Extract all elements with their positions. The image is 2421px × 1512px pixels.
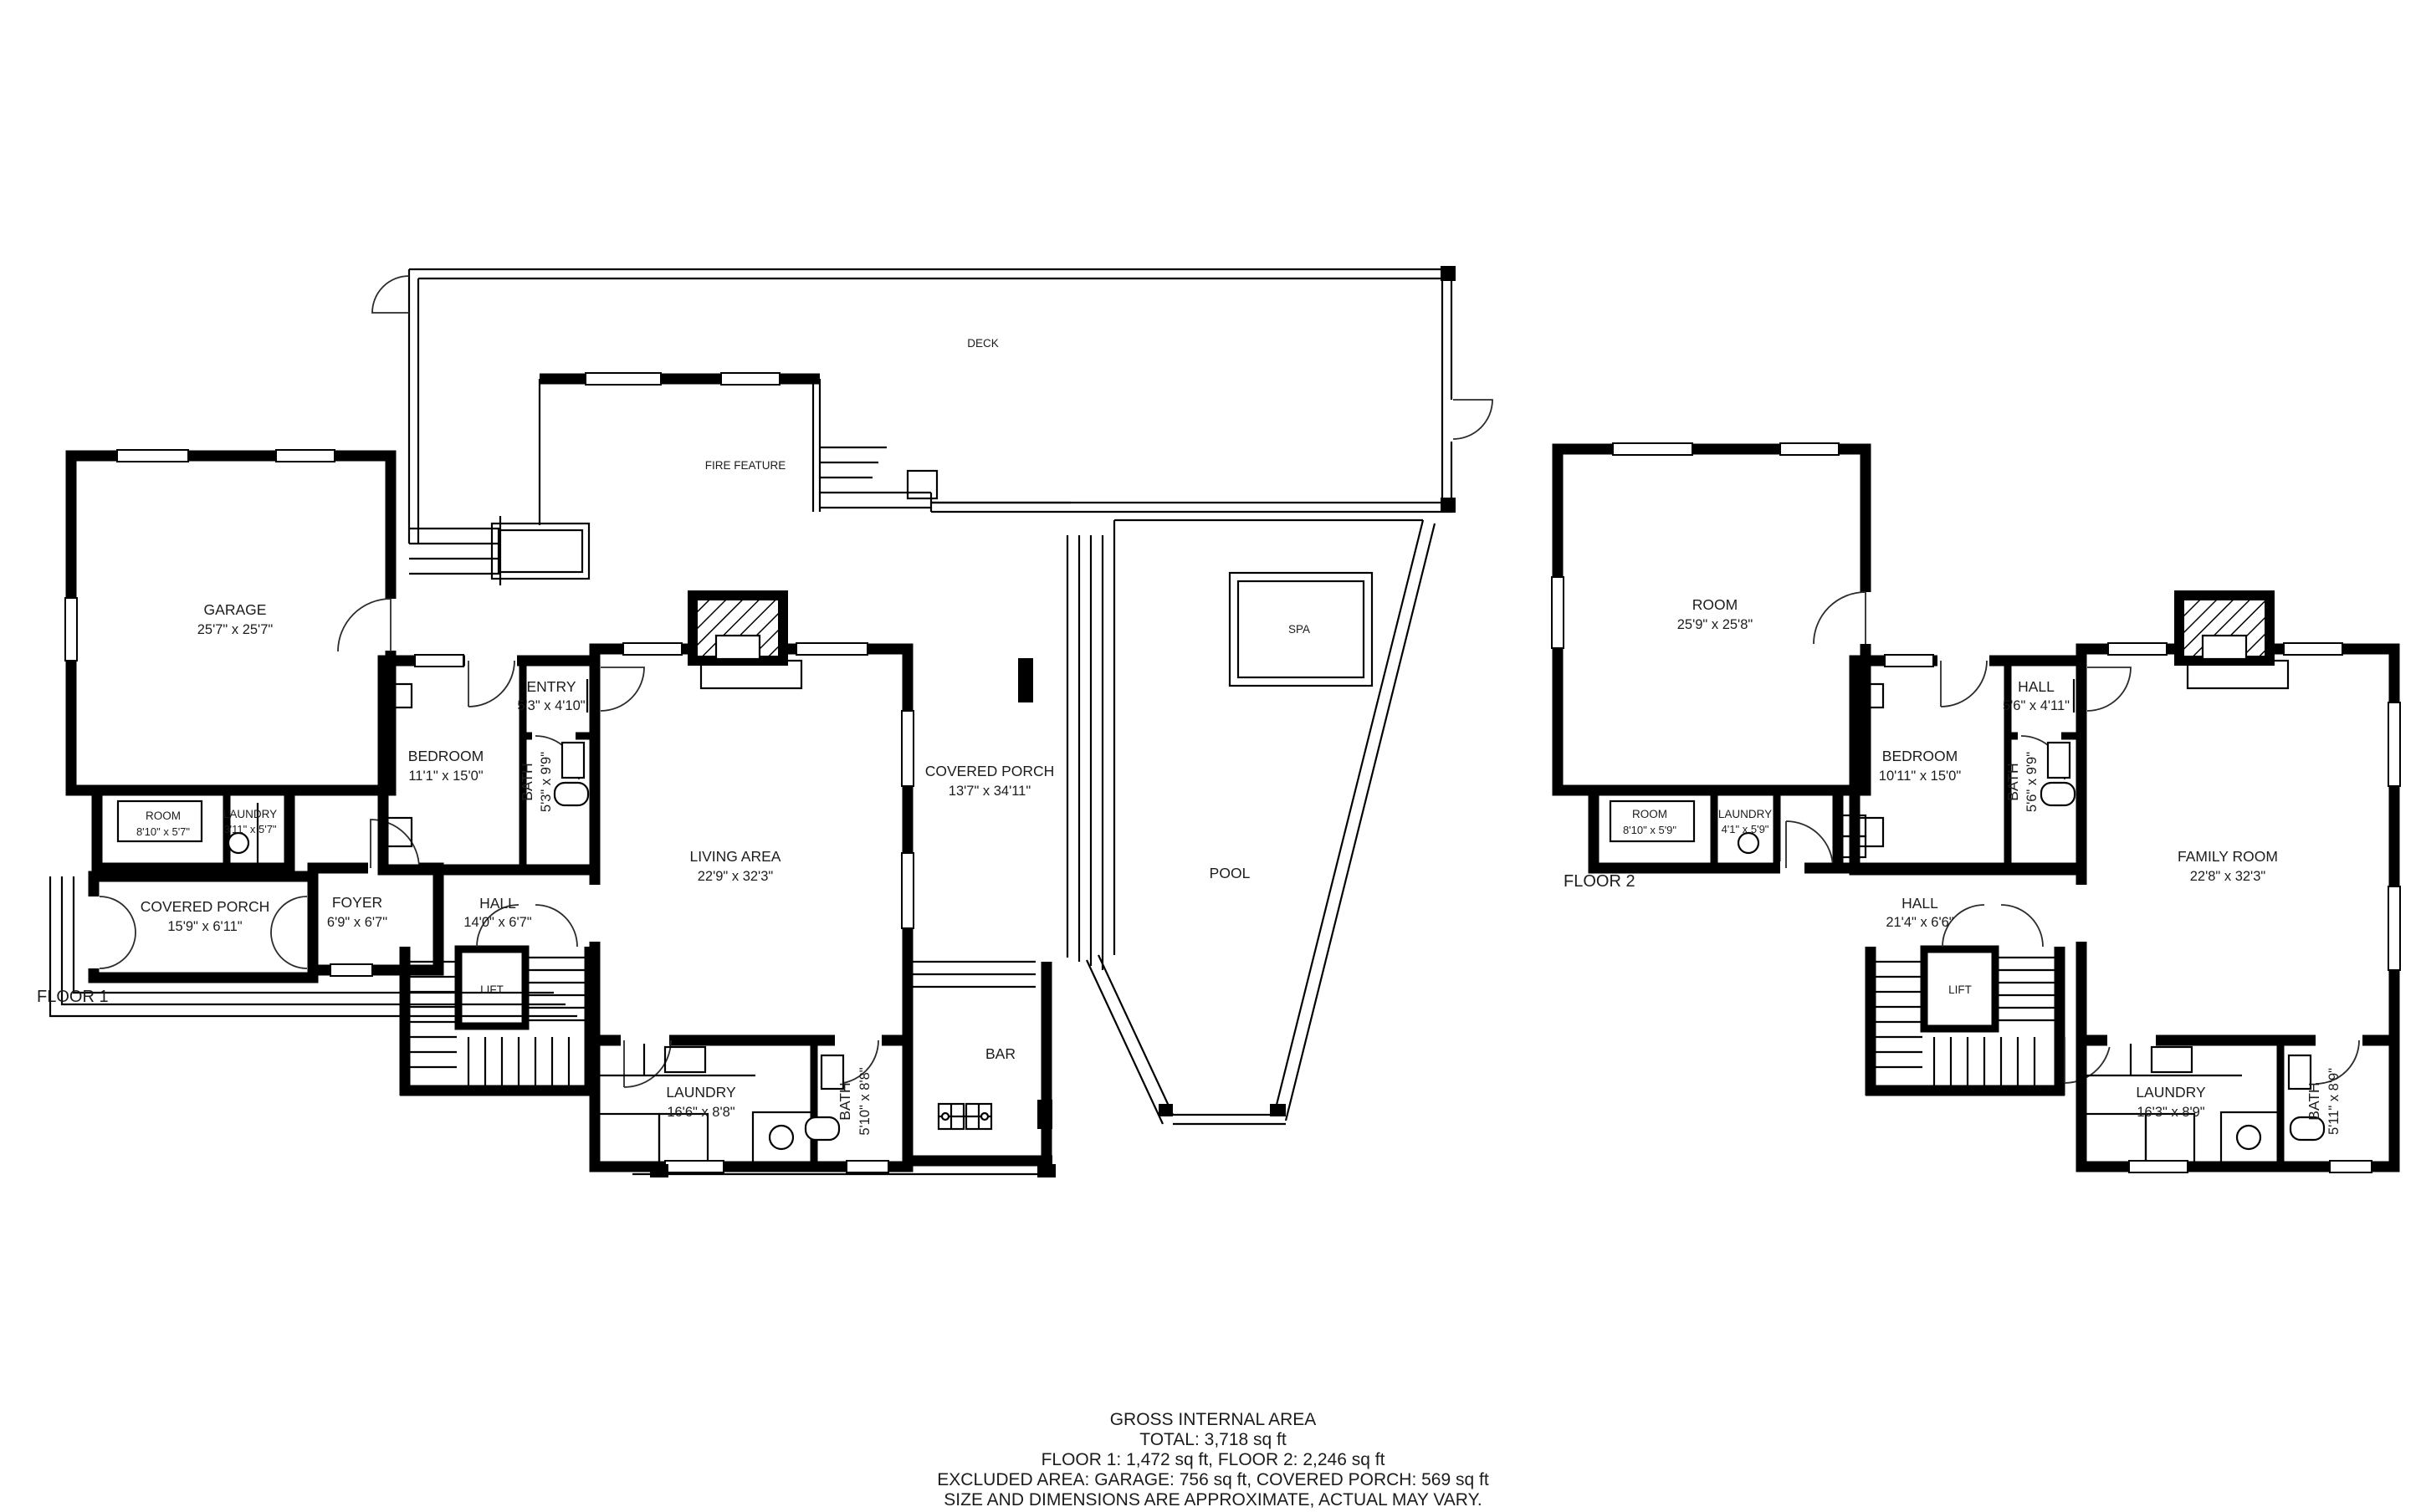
room-label-bath-f1: BATH — [519, 763, 535, 800]
room-dims-room-small-f2: 8'10" x 5'9" — [1623, 824, 1676, 836]
area-label-fire-feature: FIRE FEATURE — [705, 459, 786, 472]
room-dims-bath2-f2: 5'11" x 8'9" — [2326, 1068, 2342, 1135]
room-dims-hall-small-f2: 5'6" x 4'11" — [2003, 698, 2070, 713]
room-label-hall-f2: HALL — [1901, 895, 1938, 912]
living-area-walls — [589, 595, 914, 1040]
room-label-entry: ENTRY — [527, 678, 576, 695]
floor2-label: FLOOR 2 — [1564, 872, 1635, 891]
room-dims-room-large: 25'9" x 25'8" — [1677, 617, 1753, 632]
room-label-bedroom-f1: BEDROOM — [408, 748, 484, 764]
area-label-pool: POOL — [1210, 865, 1251, 881]
floor1-plan: GARAGE 25'7" x 25'7" ROOM 8'10" x 5'7" L… — [37, 266, 1492, 1177]
summary-line-5: SIZE AND DIMENSIONS ARE APPROXIMATE, ACT… — [944, 1490, 1482, 1509]
floor-plan-svg: GARAGE 25'7" x 25'7" ROOM 8'10" x 5'7" L… — [0, 0, 2421, 1512]
area-summary: GROSS INTERNAL AREA TOTAL: 3,718 sq ft F… — [937, 1410, 1489, 1509]
room-label-lift-f2: LIFT — [1948, 983, 1972, 996]
summary-line-2: TOTAL: 3,718 sq ft — [1139, 1430, 1287, 1449]
room-dims-laundry-f2: 16'3" x 8'9" — [2137, 1105, 2204, 1120]
room-dims-laundry-small-f1: 3'11" x 5'7" — [223, 823, 276, 835]
floor1-label: FLOOR 1 — [37, 988, 109, 1006]
room-dims-hall-f1: 14'0" x 6'7" — [463, 915, 531, 930]
room-dims-laundry-f1: 16'6" x 8'8" — [667, 1105, 734, 1120]
stair-lift-block-f2 — [1804, 868, 2111, 1096]
room-label-bath-f2: BATH — [2004, 763, 2021, 800]
room-label-lift-f1: LIFT — [480, 983, 504, 996]
summary-line-4: EXCLUDED AREA: GARAGE: 756 sq ft, COVERE… — [937, 1470, 1489, 1489]
room-label-hall-f1: HALL — [479, 895, 516, 912]
room-label-covered-porch-f1: COVERED PORCH — [141, 898, 270, 915]
room-label-hall-small-f2: HALL — [2018, 678, 2055, 695]
family-room-walls — [2076, 595, 2400, 1040]
room-label-bath2-f2: BATH — [2306, 1082, 2322, 1120]
garage-walls — [65, 450, 398, 790]
room-dims-room-f1: 8'10" x 5'7" — [136, 825, 190, 838]
room-label-family-room: FAMILY ROOM — [2178, 848, 2278, 865]
area-label-bar: BAR — [985, 1045, 1016, 1062]
room-label-bedroom-f2: BEDROOM — [1882, 748, 1958, 764]
bar-walls — [908, 962, 1052, 1161]
room-label-room-large: ROOM — [1692, 596, 1738, 613]
summary-line-3: FLOOR 1: 1,472 sq ft, FLOOR 2: 2,246 sq … — [1042, 1450, 1385, 1469]
fire-feature-room — [492, 373, 1071, 579]
room-dims-hall-f2: 21'4" x 6'6" — [1886, 915, 1953, 930]
room-label-laundry-f1: LAUNDRY — [666, 1084, 736, 1101]
room-dims-covered-porch-f1: 15'9" x 6'11" — [167, 919, 242, 934]
room-dims-entry: 5'3" x 4'10" — [517, 698, 585, 713]
room-dims-laundry-small-f2: 4'1" x 5'9" — [1722, 823, 1769, 835]
area-dims-covered-porch-rear: 13'7" x 34'11" — [949, 784, 1031, 799]
room-label-room-small-f2: ROOM — [1632, 808, 1667, 820]
room-dims-bedroom-f1: 11'1" x 15'0" — [408, 769, 483, 784]
area-label-covered-porch-rear: COVERED PORCH — [925, 763, 1055, 779]
room-label-bath2-f1: BATH — [837, 1082, 853, 1120]
room-dims-bath-f2: 5'6" x 9'9" — [2024, 752, 2040, 812]
room-dims-family-room: 22'8" x 32'3" — [2190, 869, 2266, 884]
room-dims-foyer: 6'9" x 6'7" — [327, 915, 387, 930]
room-dims-bedroom-f2: 10'11" x 15'0" — [1879, 769, 1962, 784]
room-dims-bath-f1: 5'3" x 9'9" — [539, 752, 554, 812]
room-label-room-f1: ROOM — [146, 810, 181, 822]
floor2-plan: ROOM 25'9" x 25'8" ROOM 8'10" x 5'9" LAU… — [1552, 443, 2400, 1172]
room-label-foyer: FOYER — [332, 894, 382, 911]
rear-porch — [908, 520, 1114, 987]
room-label-laundry-small-f2: LAUNDRY — [1718, 808, 1772, 820]
laundry-bath-block-f2 — [2081, 1034, 2394, 1172]
room-label-garage: GARAGE — [204, 601, 267, 618]
area-label-spa: SPA — [1288, 623, 1310, 636]
floor-plan-page: GARAGE 25'7" x 25'7" ROOM 8'10" x 5'7" L… — [0, 0, 2421, 1512]
entry-walkway-steps — [409, 516, 500, 585]
summary-line-1: GROSS INTERNAL AREA — [1110, 1410, 1317, 1429]
room-dims-garage: 25'7" x 25'7" — [197, 622, 274, 637]
stair-lift-block — [400, 905, 595, 1096]
room-dims-living-area: 22'9" x 32'3" — [698, 869, 774, 884]
room-label-living-area: LIVING AREA — [690, 848, 781, 865]
pool-spa — [1087, 520, 1435, 1124]
room-dims-bath2-f1: 5'10" x 8'8" — [857, 1067, 873, 1135]
area-label-deck: DECK — [967, 337, 999, 350]
room-label-laundry-f2: LAUNDRY — [2136, 1084, 2206, 1101]
room-label-laundry-small-f1: LAUNDRY — [223, 808, 277, 820]
